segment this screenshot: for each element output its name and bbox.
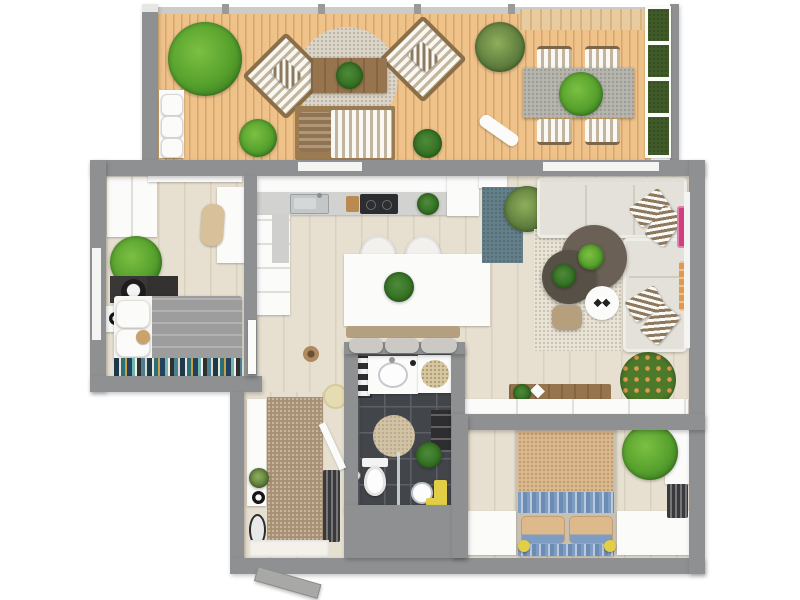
- banquette-cushion: [385, 338, 419, 353]
- teddy-bear: [136, 330, 150, 344]
- balcony-left-wall: [142, 4, 158, 162]
- bedroom-left-bottom-wall: [90, 376, 262, 392]
- bed-left: [114, 296, 242, 360]
- living-bedroom-divider-wall: [452, 414, 705, 430]
- balcony-right-wall: [670, 4, 679, 162]
- cooktop: [360, 194, 398, 214]
- window-top: [298, 162, 362, 171]
- window-right-sill: [684, 192, 690, 348]
- terrace-plant: [239, 119, 277, 157]
- wardrobe-left: [107, 177, 157, 237]
- fern-plant: [475, 22, 525, 72]
- hedge-plant: [648, 81, 669, 113]
- hall-plant: [249, 468, 269, 488]
- pergola-strip: [520, 9, 652, 30]
- rail-post: [414, 4, 421, 14]
- burner: [382, 200, 392, 210]
- basket: [303, 346, 319, 362]
- outdoor-chair: [537, 119, 572, 145]
- rail-post: [318, 4, 325, 14]
- right-wall: [689, 160, 705, 574]
- chaise-chair: [200, 203, 226, 247]
- island-plant: [384, 272, 414, 302]
- counter-plant: [417, 193, 439, 215]
- cutting-board: [346, 196, 359, 212]
- toilet-bowl: [364, 466, 386, 496]
- nightstand: [462, 511, 516, 555]
- bed-throw-band: [518, 492, 614, 513]
- rail-post: [508, 4, 515, 14]
- faucet: [317, 193, 322, 198]
- balcony-wall-cap: [142, 4, 158, 12]
- yellow-lamp: [518, 540, 530, 552]
- bed-duvet-tan: [518, 432, 614, 492]
- vanity-sink: [378, 362, 408, 388]
- low-cabinet: [462, 399, 688, 414]
- bedroom-right-west-wall: [452, 414, 468, 558]
- soap-dispenser: [410, 360, 416, 366]
- sink-bowl: [294, 198, 316, 209]
- vanity-faucet: [389, 357, 395, 363]
- bed-pillow: [521, 516, 565, 544]
- pouf: [552, 305, 582, 330]
- bedroom-radiator: [667, 484, 688, 518]
- sofa-seam: [629, 276, 681, 278]
- window-top: [543, 162, 659, 171]
- rail-post: [222, 4, 229, 14]
- runner-rug: [267, 397, 323, 541]
- window-left: [92, 248, 101, 340]
- bench-cushion: [161, 116, 183, 138]
- hedge-plant: [648, 45, 669, 77]
- daybed-pillow: [299, 112, 331, 152]
- hall-console: [247, 399, 266, 506]
- hall-west-wall: [230, 392, 244, 558]
- dining-island-table: [344, 254, 490, 326]
- entry-mat: [249, 540, 329, 557]
- banquette-cushion: [349, 338, 383, 353]
- bed-right: [516, 426, 616, 556]
- kitchen-sink: [290, 194, 329, 214]
- yellow-lamp: [604, 540, 616, 552]
- bench-cushion: [161, 138, 183, 158]
- bed-duvet-gray: [152, 296, 242, 360]
- terrace-plant: [413, 129, 442, 158]
- kitchen-corner-counter: [447, 176, 479, 216]
- hedge-plant: [648, 9, 669, 41]
- glass-partition: [397, 452, 400, 508]
- armchair-pillow: [270, 58, 303, 91]
- hall-disc: [252, 491, 265, 504]
- terrace-plant-large: [168, 22, 242, 96]
- banquette-cushion: [421, 338, 457, 353]
- hedge-plant: [648, 117, 669, 155]
- coffee-table-plant: [578, 244, 604, 270]
- table-plant: [336, 62, 363, 89]
- burner: [366, 200, 376, 210]
- hall-radiator: [323, 470, 340, 542]
- bench-cushion: [161, 94, 183, 116]
- kitchen-upper-cabinets: [257, 176, 449, 192]
- outdoor-chair: [585, 119, 620, 145]
- floor-plan: [0, 0, 800, 600]
- bed-foot-band: [518, 544, 614, 556]
- daybed-mattress: [331, 110, 392, 158]
- coffee-table-plant: [552, 264, 576, 288]
- bath-plant: [416, 442, 442, 468]
- bathroom-west-wall: [344, 348, 358, 512]
- armchair-pillow: [407, 41, 440, 74]
- bedroom-right-plant: [622, 424, 678, 480]
- bathroom-bottom-wall-mass: [344, 505, 465, 558]
- dining-table-plant: [559, 72, 603, 116]
- bedroom-left-door-leaf: [248, 320, 256, 374]
- banquette-backrest: [346, 326, 460, 338]
- bath-round-rug: [373, 415, 415, 457]
- bed-pillow: [116, 300, 150, 328]
- bottom-wall: [230, 558, 705, 574]
- daybed-frame: [295, 106, 395, 160]
- shower-mat: [421, 360, 449, 388]
- kitchen-left-counter: [272, 215, 289, 263]
